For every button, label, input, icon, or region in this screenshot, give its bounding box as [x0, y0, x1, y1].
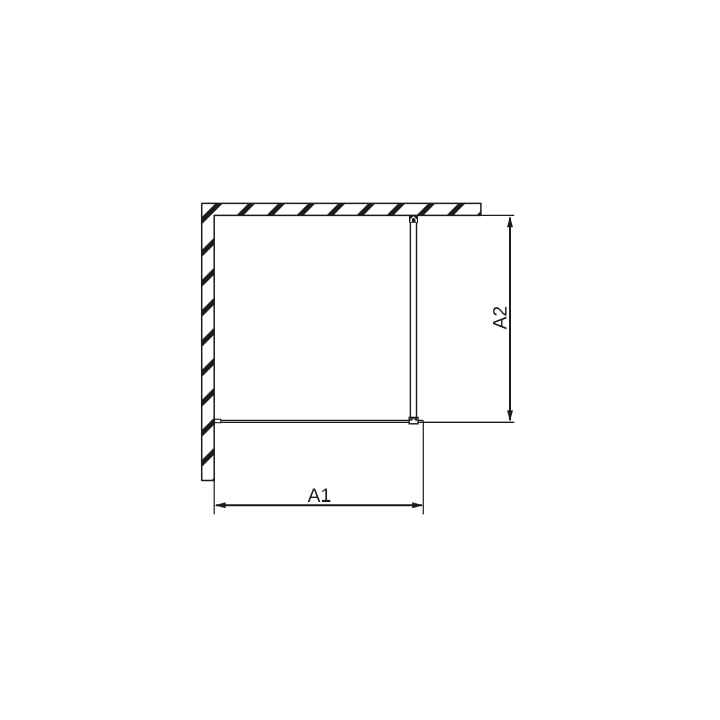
svg-text:A2: A2: [491, 306, 512, 329]
svg-text:A1: A1: [308, 486, 331, 507]
